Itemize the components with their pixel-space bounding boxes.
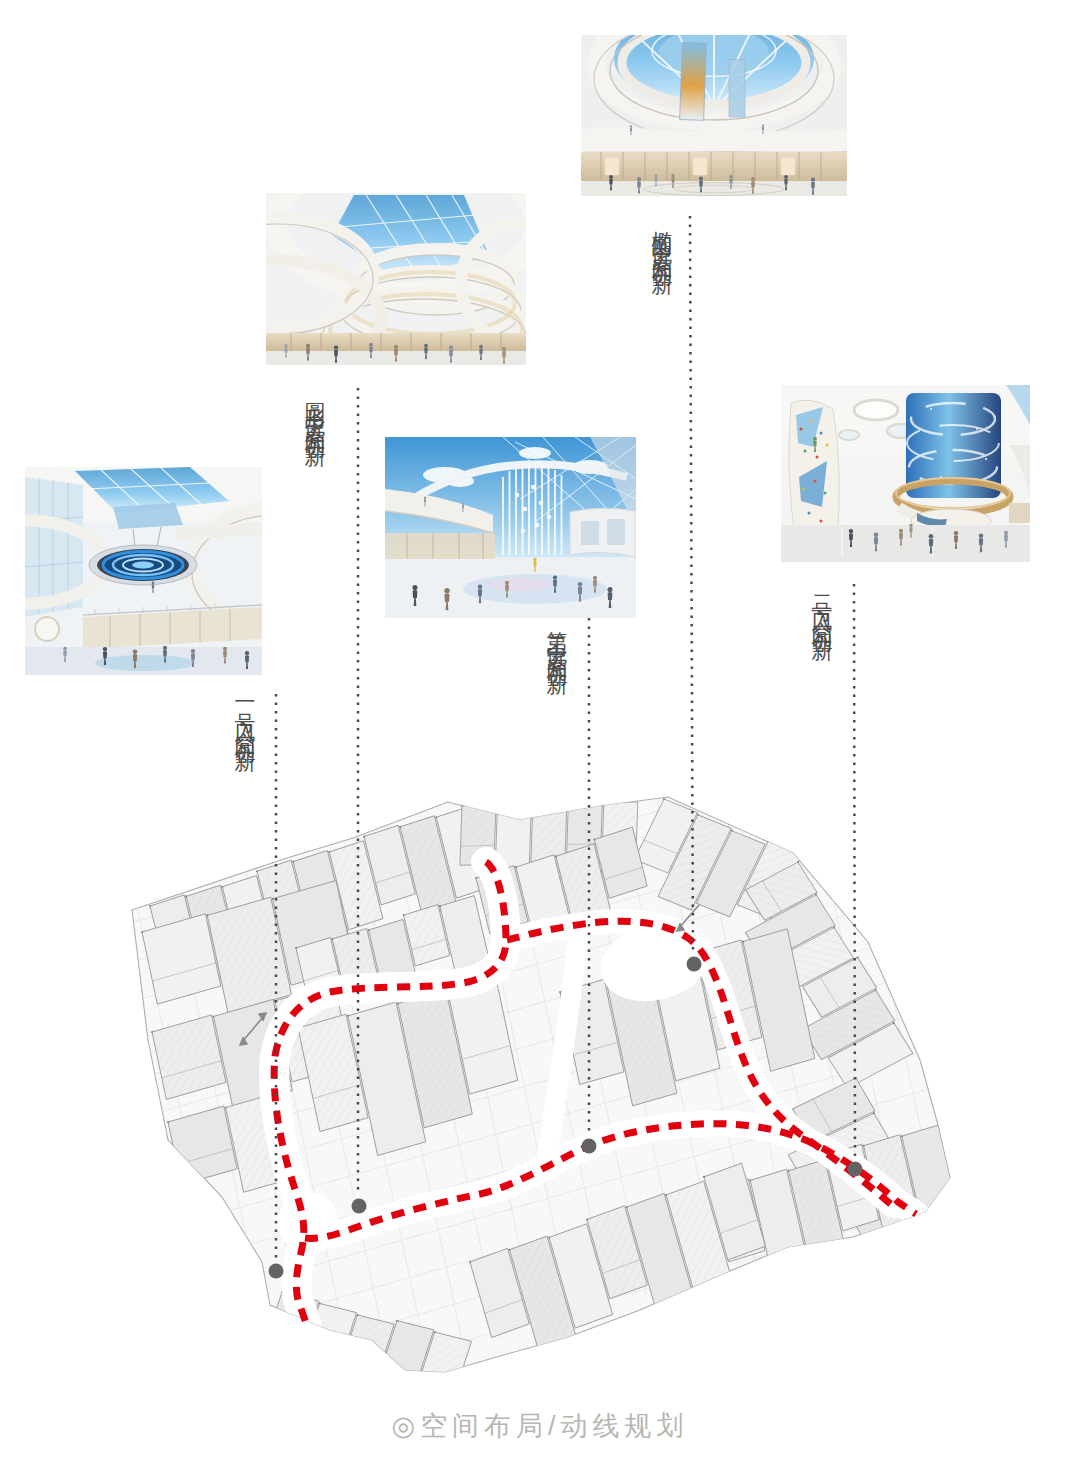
- climbing-wall: [789, 400, 839, 547]
- floor: [25, 647, 262, 675]
- photo-entrance-1: [25, 467, 262, 675]
- plan-marker-oval-atrium: [687, 957, 702, 972]
- page-caption: ◎空间布局/动线规划: [391, 1408, 688, 1444]
- caption-bullseye-icon: ◎: [391, 1411, 420, 1441]
- callout-label-entrance-2: 二号入口空间创新: [812, 580, 833, 628]
- plan-marker-atrium-3: [582, 1139, 597, 1154]
- callout-label-oval-atrium: 椭圆中庭空间创新: [652, 214, 673, 262]
- floor: [781, 525, 1030, 562]
- storefronts: [385, 533, 495, 559]
- page: 椭圆中庭空间创新 圆形中庭空间创新 一号入口空间创新 第三中庭空间创新 二号入口…: [0, 0, 1080, 1475]
- floor: [385, 559, 636, 618]
- callout-label-atrium-3: 第三中庭空间创新: [547, 614, 568, 662]
- photo-round-atrium: [266, 193, 526, 365]
- round-store-sign: [35, 617, 59, 641]
- caption-text: 空间布局/动线规划: [420, 1411, 689, 1441]
- plan-marker-entrance-1: [269, 1264, 284, 1279]
- plan-marker-round-atrium: [352, 1199, 367, 1214]
- led-cylinder: [896, 393, 1010, 513]
- photo-entrance-2: [781, 385, 1030, 562]
- right-kiosk: [570, 508, 636, 557]
- photo-oval-atrium: [581, 35, 847, 196]
- photo-atrium-3: [385, 437, 636, 618]
- callout-label-entrance-1: 一号入口空间创新: [235, 691, 256, 739]
- floor: [581, 181, 847, 196]
- plan-marker-entrance-2: [848, 1162, 863, 1177]
- floor-plan: [0, 0, 1080, 1475]
- callout-label-round-atrium: 圆形中庭空间创新: [305, 386, 326, 434]
- storefronts: [581, 152, 847, 182]
